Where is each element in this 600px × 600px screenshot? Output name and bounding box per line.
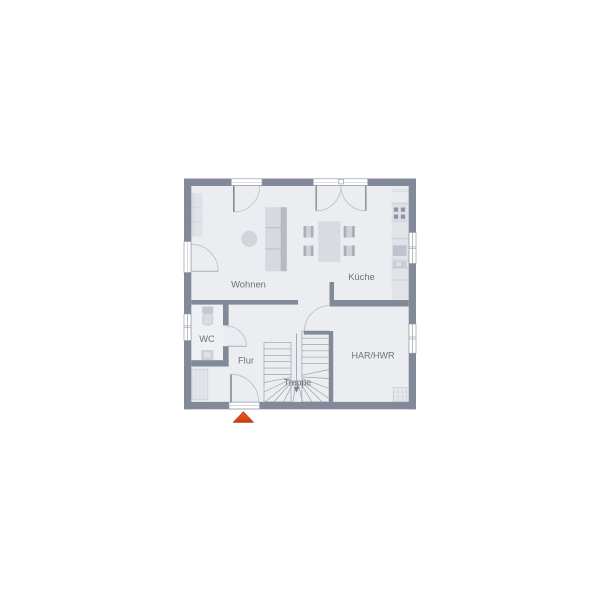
- svg-text:Wohnen: Wohnen: [231, 279, 266, 290]
- svg-text:Flur: Flur: [238, 355, 254, 365]
- svg-text:Küche: Küche: [348, 272, 374, 282]
- svg-text:HAR/HWR: HAR/HWR: [352, 350, 395, 360]
- svg-text:Treppe: Treppe: [284, 378, 312, 388]
- svg-text:WC: WC: [199, 334, 215, 344]
